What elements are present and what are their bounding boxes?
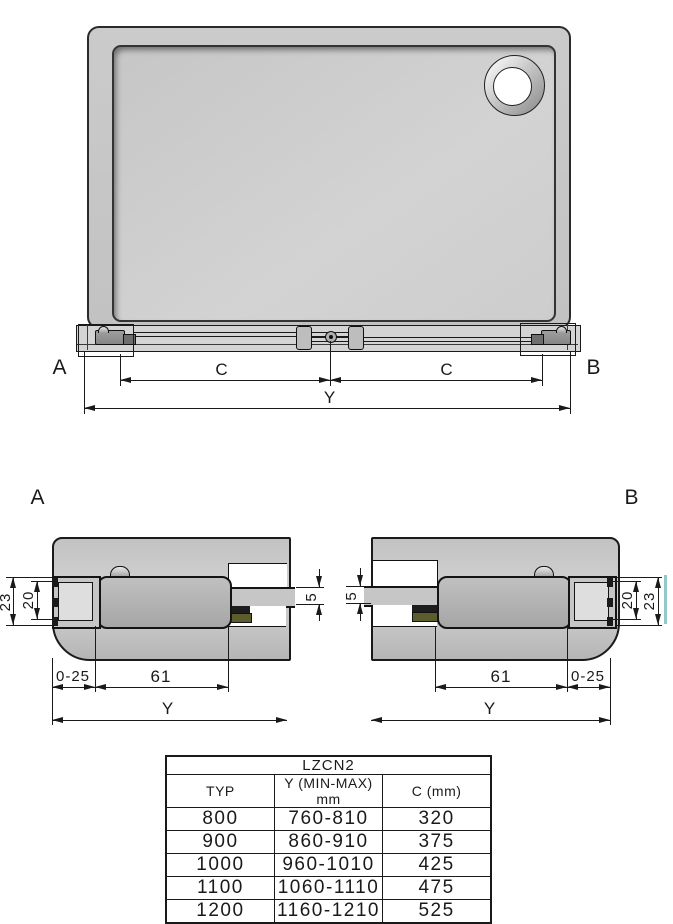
wall-anchor-mark [52, 578, 58, 587]
dim-line-y [371, 720, 610, 721]
table-cell: 1060-1110 [274, 877, 382, 900]
column-header-c: C (mm) [383, 775, 491, 808]
table-cell: 375 [383, 831, 491, 854]
ext-line [542, 354, 543, 386]
arrowhead [84, 405, 95, 411]
table-title: LZCN2 [166, 756, 491, 775]
dim-line-c-right [330, 380, 542, 381]
table-row: 1000960-1010425 [166, 854, 491, 877]
dim-label-61: 61 [131, 667, 191, 687]
column-header-typ: TYP [166, 775, 274, 808]
table-cell: 1100 [166, 877, 274, 900]
detail-ref-a: A [40, 356, 80, 380]
arrowhead [559, 405, 570, 411]
section-b-label: B [612, 486, 652, 510]
ext-line [612, 619, 641, 620]
ext-line [616, 625, 662, 626]
dim-label-20: 20 [21, 585, 37, 615]
section-a-wall-profile-channel [58, 582, 93, 621]
wall-anchor-mark [607, 578, 613, 587]
table-cell: 1160-1210 [274, 900, 382, 924]
section-b-wall-profile-channel [574, 582, 609, 621]
table-cell: 1200 [166, 900, 274, 924]
drain-hole [493, 67, 532, 106]
center-clamp-right [348, 326, 364, 350]
arrowhead [52, 717, 63, 723]
section-a-bracket [97, 576, 232, 629]
glass-panel-right-edge [311, 337, 532, 342]
arrowhead [531, 377, 542, 383]
section-b-seal [412, 612, 440, 622]
arrowhead [319, 377, 330, 383]
dim-line-y [52, 720, 287, 721]
wall-anchor-mark [52, 598, 58, 607]
dim-label-5: 5 [344, 581, 360, 611]
table-cell: 475 [383, 877, 491, 900]
arrowhead [120, 377, 131, 383]
dim-label-23: 23 [0, 587, 14, 617]
ext-line [228, 626, 229, 692]
dim-label-c-left: C [190, 360, 254, 380]
table-cell: 960-1010 [274, 854, 382, 877]
table-row: 900860-910375 [166, 831, 491, 854]
dim-line-c-left [120, 380, 330, 381]
dim-label-c-right: C [415, 360, 479, 380]
dim-line-bottom [52, 687, 228, 688]
section-a-glass [227, 587, 295, 608]
dim-label-23: 23 [642, 586, 658, 616]
ext-line [570, 352, 571, 414]
dim-line-bottom [435, 687, 610, 688]
table-row: 11001060-1110475 [166, 877, 491, 900]
table-row: 12001160-1210525 [166, 900, 491, 924]
detail-box-b [520, 323, 576, 356]
table-cell: 525 [383, 900, 491, 924]
detail-box-a [78, 324, 134, 357]
section-a-label: A [18, 486, 58, 510]
wall-anchor-mark [607, 598, 613, 607]
dim-label-20: 20 [620, 585, 636, 615]
center-knob [325, 331, 337, 343]
dim-label-61: 61 [471, 667, 531, 687]
rail-inner-line [77, 344, 578, 345]
glass-edge-marker [664, 575, 667, 624]
arrowhead [330, 377, 341, 383]
table-cell: 1000 [166, 854, 274, 877]
dim-line-y [84, 408, 570, 409]
drawing-canvas: C C Y A B A 23 20 [0, 0, 673, 924]
section-b-glass [364, 586, 437, 607]
table-row: 800760-810320 [166, 808, 491, 831]
arrowhead [435, 684, 446, 690]
size-table: LZCN2 TYP Y (MIN-MAX) mm C (mm) 800760-8… [165, 755, 492, 924]
table-header-row: TYP Y (MIN-MAX) mm C (mm) [166, 775, 491, 808]
arrowhead [371, 717, 382, 723]
dim-label-y: Y [138, 699, 198, 719]
ext-line [6, 625, 52, 626]
table-cell: 425 [383, 854, 491, 877]
arrowhead [276, 717, 287, 723]
dim-label-y: Y [460, 699, 520, 719]
table-cell: 900 [166, 831, 274, 854]
arrowhead [599, 717, 610, 723]
table-cell: 860-910 [274, 831, 382, 854]
ext-line [31, 619, 58, 620]
section-b-notch [373, 560, 438, 586]
section-a-notch [228, 563, 287, 588]
ext-line [435, 626, 436, 692]
section-b-bracket [437, 576, 572, 629]
dim-label-5: 5 [304, 582, 320, 612]
center-clamp-left [296, 326, 312, 350]
table-title-row: LZCN2 [166, 756, 491, 775]
section-b-seal-holder [412, 605, 438, 612]
table-cell: 760-810 [274, 808, 382, 831]
column-header-y: Y (MIN-MAX) mm [274, 775, 382, 808]
dim-label-adjust: 0-25 [558, 668, 618, 685]
detail-ref-b: B [574, 356, 614, 380]
dim-label-y: Y [298, 388, 362, 408]
table-cell: 320 [383, 808, 491, 831]
dim-label-adjust: 0-25 [43, 668, 103, 685]
table-cell: 800 [166, 808, 274, 831]
table-body: 800760-810320900860-9103751000960-101042… [166, 808, 491, 924]
arrowhead [217, 684, 228, 690]
